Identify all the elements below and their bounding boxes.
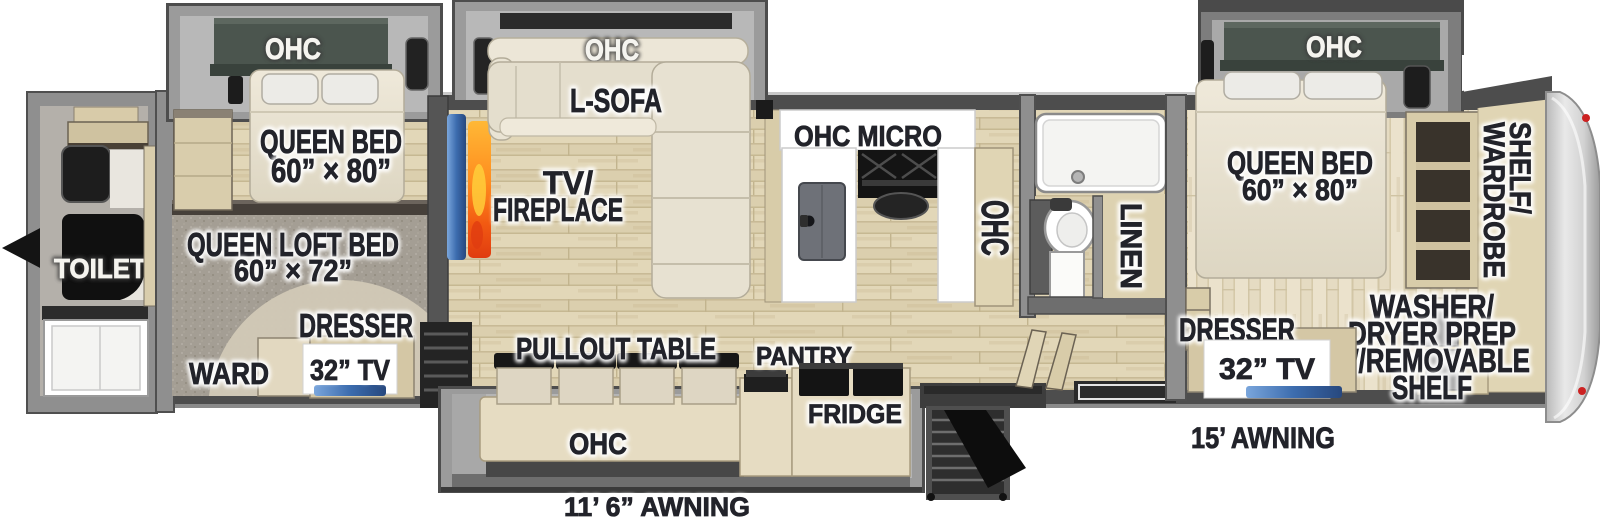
svg-text:11’ 6” AWNING: 11’ 6” AWNING — [564, 492, 750, 520]
svg-text:FRIDGE: FRIDGE — [808, 399, 902, 429]
svg-text:60” × 80”: 60” × 80” — [271, 152, 391, 189]
svg-text:LINEN: LINEN — [1114, 203, 1147, 289]
svg-text:L-SOFA: L-SOFA — [570, 82, 662, 119]
svg-text:15’ AWNING: 15’ AWNING — [1191, 422, 1335, 455]
svg-text:32” TV: 32” TV — [1219, 353, 1315, 386]
svg-text:WARD: WARD — [189, 356, 269, 391]
svg-text:32” TV: 32” TV — [310, 355, 391, 387]
svg-text:FIREPLACE: FIREPLACE — [493, 192, 623, 228]
svg-text:DRESSER: DRESSER — [299, 307, 413, 344]
svg-text:PULLOUT TABLE: PULLOUT TABLE — [516, 331, 716, 366]
svg-text:60” × 80”: 60” × 80” — [1242, 174, 1358, 207]
svg-text:OHC: OHC — [1306, 31, 1362, 64]
svg-text:WARDROBE: WARDROBE — [1477, 122, 1510, 278]
svg-text:SHELF: SHELF — [1392, 369, 1472, 406]
svg-text:60” × 72”: 60” × 72” — [234, 253, 352, 288]
svg-text:OHC: OHC — [265, 33, 321, 66]
svg-text:OHC: OHC — [973, 200, 1015, 256]
svg-text:OHC: OHC — [569, 428, 627, 461]
svg-text:TOILET: TOILET — [54, 253, 146, 284]
